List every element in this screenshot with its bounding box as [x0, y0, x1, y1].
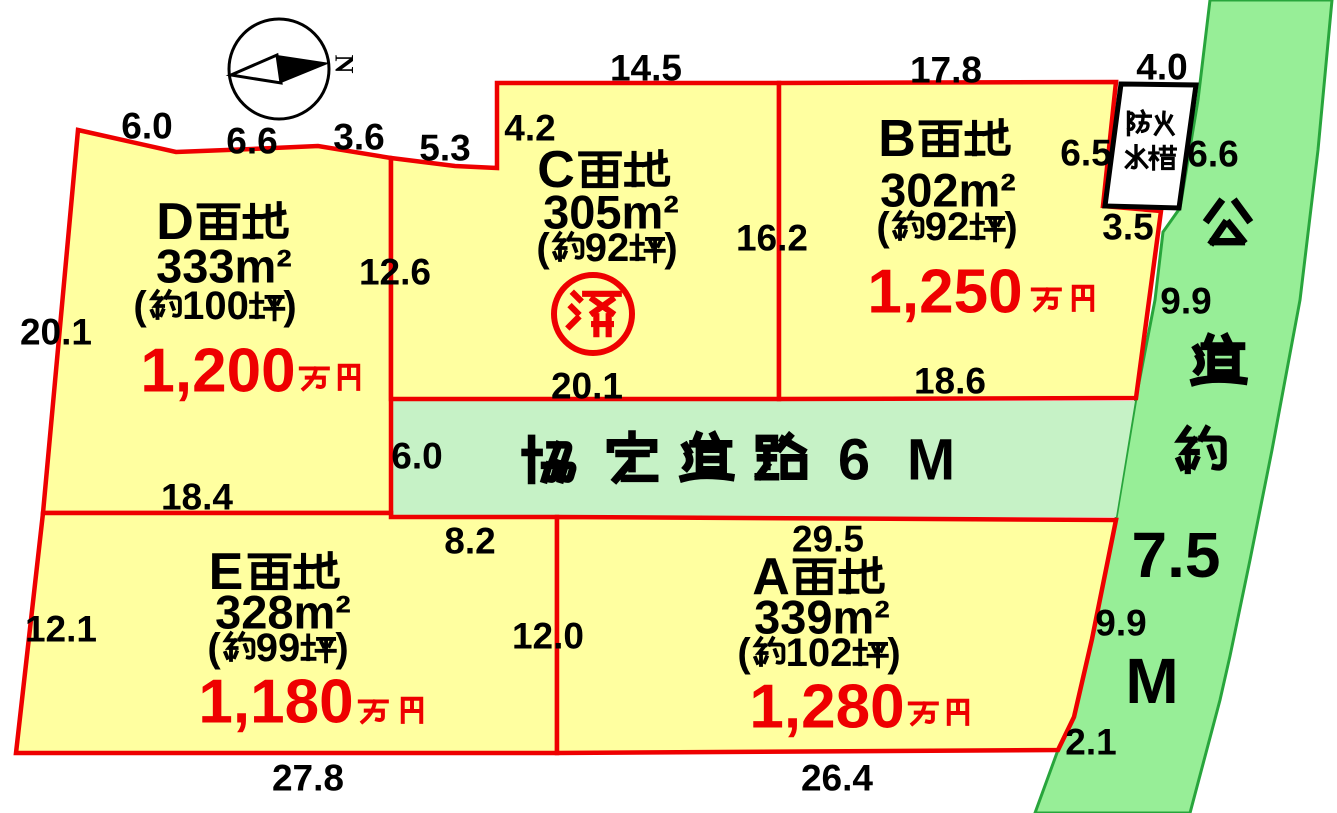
svg-text:102: 102: [786, 631, 853, 675]
svg-text:): ): [335, 626, 348, 670]
svg-text:3.5: 3.5: [1102, 207, 1153, 248]
svg-text:B: B: [878, 110, 916, 168]
svg-text:(: (: [133, 284, 147, 328]
svg-text:): ): [283, 284, 296, 328]
svg-text:): ): [887, 631, 900, 675]
svg-text:): ): [1004, 205, 1017, 249]
svg-text:6.5: 6.5: [1060, 133, 1111, 174]
svg-text:(: (: [737, 631, 751, 675]
svg-text:M: M: [1125, 645, 1178, 717]
svg-text:N: N: [330, 55, 359, 74]
svg-text:26.4: 26.4: [801, 758, 873, 799]
svg-text:1,200: 1,200: [140, 337, 295, 406]
svg-text:99: 99: [256, 626, 301, 670]
svg-text:16.2: 16.2: [736, 218, 808, 259]
svg-text:20.1: 20.1: [551, 366, 623, 407]
svg-text:4.0: 4.0: [1136, 47, 1187, 88]
svg-text:1,180: 1,180: [198, 668, 353, 737]
svg-text:): ): [664, 226, 677, 270]
svg-text:3.6: 3.6: [333, 117, 384, 158]
svg-text:92: 92: [925, 205, 970, 249]
svg-text:18.6: 18.6: [914, 361, 986, 402]
svg-text:7.5: 7.5: [1132, 519, 1221, 591]
svg-text:100: 100: [182, 284, 249, 328]
svg-text:29.5: 29.5: [792, 519, 864, 560]
svg-text:1,250: 1,250: [867, 258, 1022, 327]
svg-text:5.3: 5.3: [419, 128, 470, 169]
svg-text:6: 6: [838, 428, 870, 493]
svg-text:8.2: 8.2: [444, 521, 495, 562]
svg-text:17.8: 17.8: [910, 50, 982, 91]
svg-text:6.0: 6.0: [391, 436, 442, 477]
svg-text:12.6: 12.6: [359, 252, 431, 293]
svg-text:6.0: 6.0: [121, 106, 172, 147]
svg-text:14.5: 14.5: [610, 48, 682, 89]
svg-text:M: M: [907, 428, 955, 493]
svg-text:6.6: 6.6: [1187, 134, 1238, 175]
svg-text:9.9: 9.9: [1160, 281, 1211, 322]
svg-text:27.8: 27.8: [272, 758, 344, 799]
svg-text:2.1: 2.1: [1065, 722, 1116, 763]
svg-text:12.1: 12.1: [25, 609, 97, 650]
svg-text:9.9: 9.9: [1095, 603, 1146, 644]
svg-text:20.1: 20.1: [20, 312, 92, 353]
svg-text:18.4: 18.4: [161, 477, 233, 518]
svg-text:(: (: [536, 226, 550, 270]
svg-text:1,280: 1,280: [749, 673, 904, 742]
svg-text:(: (: [207, 626, 221, 670]
svg-text:12.0: 12.0: [512, 616, 584, 657]
svg-text:92: 92: [585, 226, 630, 270]
svg-text:6.6: 6.6: [226, 121, 277, 162]
svg-text:(: (: [876, 205, 890, 249]
